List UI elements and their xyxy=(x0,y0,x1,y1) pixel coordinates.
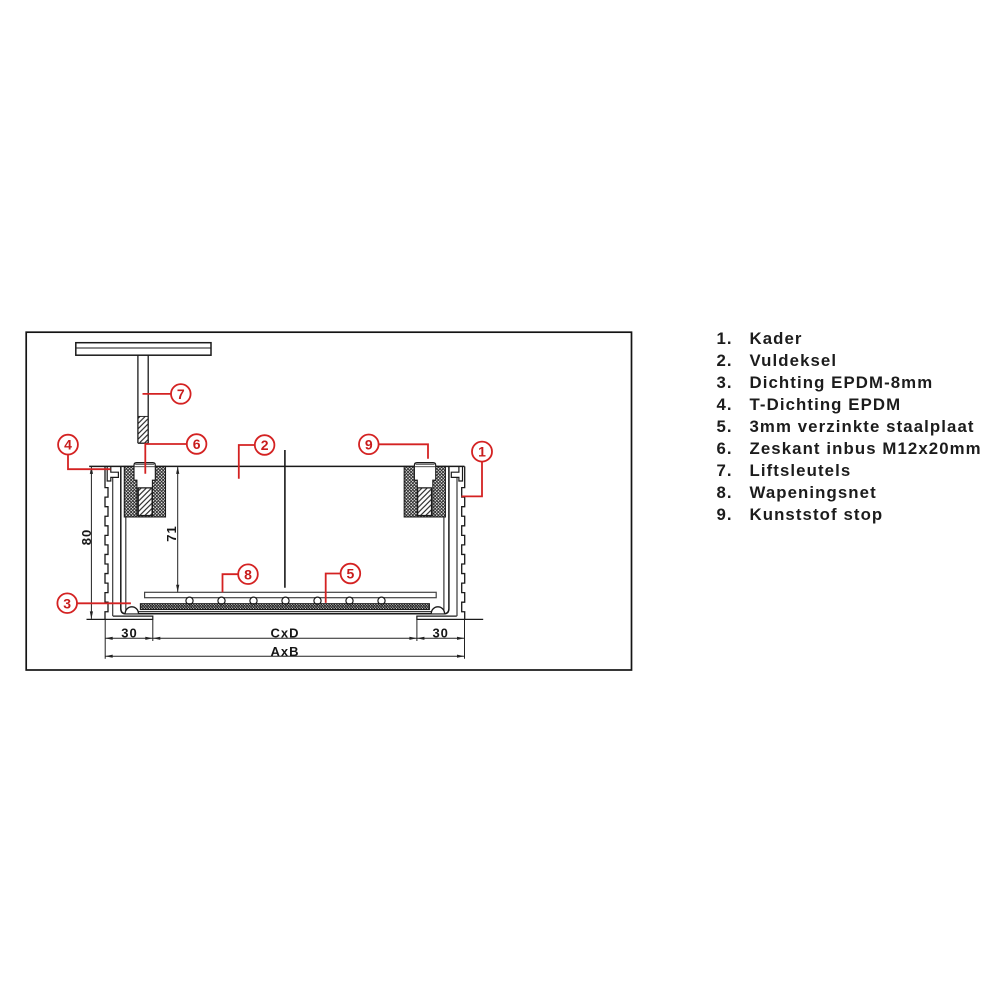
svg-text:5: 5 xyxy=(347,566,355,582)
svg-text:Dichting EPDM-8mm: Dichting EPDM-8mm xyxy=(750,373,934,392)
svg-text:Wapeningsnet: Wapeningsnet xyxy=(750,483,877,502)
svg-text:3: 3 xyxy=(63,595,71,611)
svg-text:Kunststof stop: Kunststof stop xyxy=(750,505,884,524)
svg-text:2: 2 xyxy=(261,437,269,453)
svg-text:1.: 1. xyxy=(717,329,733,348)
svg-text:80: 80 xyxy=(79,529,94,545)
svg-text:6: 6 xyxy=(193,436,201,452)
svg-text:Vuldeksel: Vuldeksel xyxy=(750,351,838,370)
svg-text:Liftsleutels: Liftsleutels xyxy=(750,461,852,480)
svg-text:6.: 6. xyxy=(717,439,733,458)
svg-text:3mm verzinkte staalplaat: 3mm verzinkte staalplaat xyxy=(750,417,975,436)
svg-text:30: 30 xyxy=(432,625,448,640)
svg-text:8.: 8. xyxy=(717,483,733,502)
svg-text:71: 71 xyxy=(164,525,179,541)
svg-text:4.: 4. xyxy=(717,395,733,414)
svg-text:7: 7 xyxy=(177,386,185,402)
svg-text:Zeskant inbus M12x20mm: Zeskant inbus M12x20mm xyxy=(750,439,982,458)
svg-text:9: 9 xyxy=(365,436,373,452)
svg-text:30: 30 xyxy=(121,625,137,640)
svg-text:T-Dichting EPDM: T-Dichting EPDM xyxy=(750,395,902,414)
svg-text:2.: 2. xyxy=(717,351,733,370)
svg-text:8: 8 xyxy=(244,566,252,582)
svg-text:CxD: CxD xyxy=(270,625,299,640)
svg-text:5.: 5. xyxy=(717,417,733,436)
svg-text:1: 1 xyxy=(478,444,486,460)
svg-text:AxB: AxB xyxy=(270,644,299,659)
svg-text:3.: 3. xyxy=(717,373,733,392)
svg-text:Kader: Kader xyxy=(750,329,803,348)
svg-text:9.: 9. xyxy=(717,505,733,524)
svg-text:4: 4 xyxy=(64,437,72,453)
svg-text:7.: 7. xyxy=(717,461,733,480)
